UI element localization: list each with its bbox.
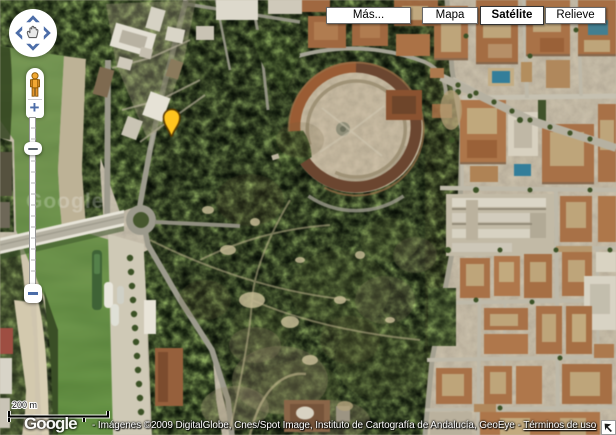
svg-text:200 m: 200 m [12,400,37,410]
svg-text:Google: Google [26,190,104,213]
